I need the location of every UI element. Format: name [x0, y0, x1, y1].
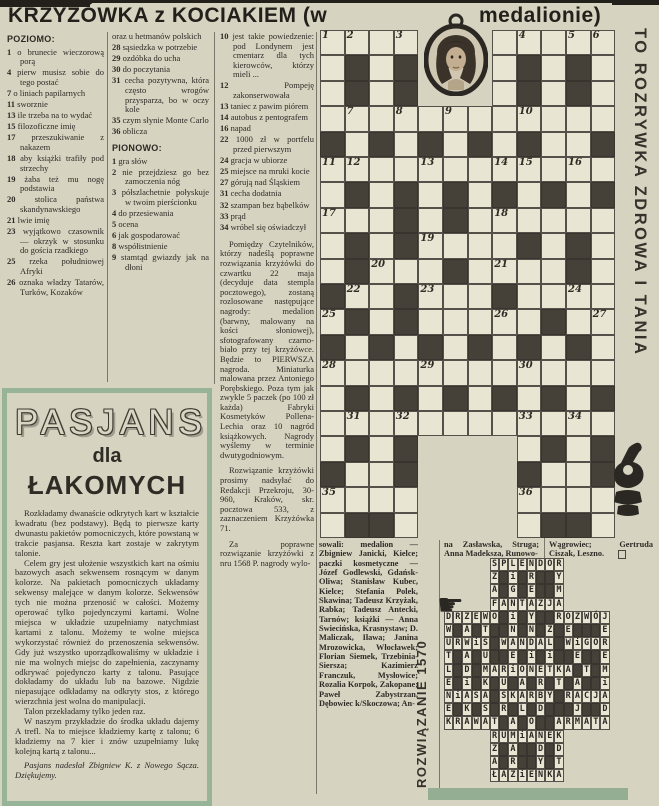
cell-letter: i: [527, 651, 536, 661]
grid-cell: A: [527, 730, 536, 743]
grid-cell: E: [472, 611, 481, 624]
grid-cell: T: [545, 664, 554, 677]
grid-cell: [541, 157, 566, 182]
grid-cell: [591, 360, 616, 385]
grid-cell: 8: [394, 106, 419, 131]
grid-cell: N: [536, 769, 545, 782]
cell-letter: A: [600, 717, 609, 727]
cell-letter: O: [518, 665, 527, 675]
cell-letter: N: [508, 599, 517, 609]
grid-cell: [541, 462, 566, 487]
cell-letter: M: [554, 585, 563, 595]
cell-letter: B: [536, 691, 545, 701]
clue-item: 22 1000 zł w portfelu przed pierwszym: [220, 135, 314, 154]
grid-cell: [443, 157, 468, 182]
grid-cell: N: [527, 558, 536, 571]
prize-announcement: Pomiędzy Czytelników, którzy nadeślą pop…: [220, 240, 314, 461]
grid-cell: [518, 743, 527, 756]
grid-cell: 20: [369, 259, 394, 284]
grid-cell: [345, 208, 370, 233]
cell-letter: i: [508, 665, 517, 675]
grid-cell: [345, 436, 370, 461]
grid-cell: [369, 182, 394, 207]
clue-item: 36 oblicza: [112, 127, 209, 137]
grid-cell: [369, 487, 394, 512]
grid-cell: [369, 386, 394, 411]
grid-cell: [394, 487, 419, 512]
clue-item: 33 prąd: [220, 212, 314, 222]
cell-letter: R: [453, 638, 462, 648]
grid-cell: J: [591, 690, 600, 703]
grid-cell: R: [508, 756, 517, 769]
grid-cell: [582, 677, 591, 690]
grid-cell: L: [508, 558, 517, 571]
cell-number: 22: [347, 284, 361, 295]
grid-cell: [492, 386, 517, 411]
grid-cell: [508, 677, 517, 690]
grid-cell: [566, 513, 591, 538]
cell-letter: C: [582, 691, 591, 701]
cell-letter: R: [564, 691, 573, 701]
cell-letter: A: [490, 585, 499, 595]
grid-cell: [566, 55, 591, 80]
grid-cell: [545, 677, 554, 690]
grid-cell: A: [554, 716, 563, 729]
grid-cell: S: [490, 558, 499, 571]
clue-item: 28 sąsiedzka w potrzebie: [112, 43, 209, 53]
grid-cell: [566, 182, 591, 207]
cell-number: 21: [494, 259, 508, 270]
cell-letter: N: [508, 625, 517, 635]
cell-number: 5: [568, 30, 575, 41]
cell-number: 2: [347, 30, 354, 41]
grid-cell: [517, 284, 542, 309]
grid-cell: E: [545, 730, 554, 743]
grid-cell: D: [462, 664, 471, 677]
grid-cell: [369, 30, 394, 55]
grid-cell: O: [518, 664, 527, 677]
grid-cell: [320, 182, 345, 207]
cell-letter: J: [591, 691, 600, 701]
grid-cell: S: [499, 690, 508, 703]
grid-cell: 23: [418, 284, 443, 309]
grid-cell: [468, 182, 493, 207]
column-rule: [316, 32, 317, 794]
cell-letter: M: [600, 665, 609, 675]
grid-cell: [320, 106, 345, 131]
cell-number: 13: [420, 157, 434, 168]
grid-cell: 18: [492, 208, 517, 233]
clue-item: 27 górują nad Śląskiem: [220, 178, 314, 188]
grid-cell: [573, 624, 582, 637]
grid-cell: A: [499, 769, 508, 782]
grid-cell: [566, 259, 591, 284]
cell-letter: A: [554, 599, 563, 609]
grid-cell: [591, 132, 616, 157]
grid-cell: [394, 436, 419, 461]
cell-number: 25: [322, 309, 336, 320]
grid-cell: Y: [536, 756, 545, 769]
grid-cell: [345, 259, 370, 284]
cell-letter: D: [536, 744, 545, 754]
cell-letter: W: [462, 638, 471, 648]
grid-cell: A: [573, 677, 582, 690]
grid-cell: P: [499, 558, 508, 571]
cell-letter: T: [444, 651, 453, 661]
cell-number: 35: [322, 487, 336, 498]
grid-cell: U: [481, 650, 490, 663]
grid-cell: [320, 335, 345, 360]
cell-letter: A: [508, 717, 517, 727]
pasjans-credit: Pasjans nadesłał Zbigniew K. z Nowego Są…: [15, 761, 199, 781]
grid-cell: [320, 284, 345, 309]
grid-cell: [541, 106, 566, 131]
cell-letter: J: [545, 599, 554, 609]
grid-cell: [566, 462, 591, 487]
grid-cell: B: [536, 690, 545, 703]
grid-cell: [517, 386, 542, 411]
grid-cell: [591, 664, 600, 677]
clue-item: 4 do przesiewania: [112, 209, 209, 219]
clues-column-2: oraz u hetmanów polskich28 sąsiedzka w p…: [112, 32, 209, 274]
cell-number: 31: [347, 411, 361, 422]
grid-cell: R: [527, 571, 536, 584]
grid-cell: O: [545, 558, 554, 571]
grid-cell: N: [444, 690, 453, 703]
grid-cell: [541, 233, 566, 258]
grid-cell: R: [564, 690, 573, 703]
grid-cell: [554, 650, 563, 663]
cell-letter: E: [600, 651, 609, 661]
grid-cell: [345, 462, 370, 487]
grid-cell: C: [582, 690, 591, 703]
cell-letter: A: [518, 691, 527, 701]
grid-cell: [492, 106, 517, 131]
grid-cell: [394, 259, 419, 284]
grid-cell: E: [508, 650, 517, 663]
grid-cell: [320, 386, 345, 411]
grid-cell: [468, 208, 493, 233]
grid-cell: [345, 81, 370, 106]
cell-letter: A: [582, 717, 591, 727]
grid-cell: i: [518, 769, 527, 782]
grid-cell: S: [481, 637, 490, 650]
clue-item: 34 wróbel się oświadczył: [220, 223, 314, 233]
cell-letter: P: [499, 559, 508, 569]
cell-number: 34: [568, 411, 582, 422]
grid-cell: [591, 284, 616, 309]
grid-cell: [541, 411, 566, 436]
cell-letter: M: [508, 731, 517, 741]
clue-item: 25 rzeka południowej Afryki: [7, 257, 104, 276]
grid-cell: [591, 208, 616, 233]
grid-cell: W: [582, 611, 591, 624]
cell-number: 10: [519, 106, 533, 117]
grid-cell: [591, 157, 616, 182]
cell-letter: E: [527, 585, 536, 595]
grid-cell: [418, 132, 443, 157]
cell-letter: S: [481, 638, 490, 648]
grid-cell: [472, 677, 481, 690]
grid-cell: A: [554, 598, 563, 611]
grid-cell: [443, 284, 468, 309]
grid-cell: [554, 703, 563, 716]
grid-cell: [527, 756, 536, 769]
grid-cell: [320, 55, 345, 80]
cell-number: 9: [445, 106, 452, 117]
grid-cell: [443, 182, 468, 207]
grid-cell: W: [564, 637, 573, 650]
grid-cell: T: [490, 716, 499, 729]
grid-cell: U: [499, 677, 508, 690]
grid-cell: U: [499, 730, 508, 743]
cell-letter: O: [591, 638, 600, 648]
cell-letter: G: [582, 638, 591, 648]
grid-cell: [345, 182, 370, 207]
cell-letter: A: [573, 691, 582, 701]
cell-letter: J: [573, 704, 582, 714]
grid-cell: A: [554, 769, 563, 782]
cell-number: 4: [519, 30, 526, 41]
grid-cell: [394, 157, 419, 182]
cell-letter: i: [518, 731, 527, 741]
grid-cell: 10: [517, 106, 542, 131]
cell-letter: S: [481, 704, 490, 714]
pasjans-article: PASJANS dla ŁAKOMYCH Rozkładamy dwanaści…: [2, 388, 212, 806]
clue-item: 2 nie przejdziesz go bez zamoczenia nóg: [112, 168, 209, 187]
grid-cell: [566, 386, 591, 411]
grid-cell: [468, 132, 493, 157]
cell-letter: Y: [545, 691, 554, 701]
grid-cell: [518, 611, 527, 624]
grid-cell: [490, 677, 499, 690]
cell-number: 14: [494, 157, 508, 168]
grid-cell: [468, 284, 493, 309]
cell-letter: U: [481, 651, 490, 661]
grid-cell: 36: [517, 487, 542, 512]
grid-cell: [443, 132, 468, 157]
grid-cell: Z: [508, 769, 517, 782]
grid-cell: [508, 703, 517, 716]
grid-cell: [472, 650, 481, 663]
cell-letter: T: [554, 757, 563, 767]
grid-cell: D: [554, 743, 563, 756]
grid-cell: [566, 360, 591, 385]
grid-cell: Z: [573, 611, 582, 624]
grid-cell: K: [462, 703, 471, 716]
grid-cell: [582, 703, 591, 716]
grid-cell: [566, 233, 591, 258]
cell-letter: L: [545, 638, 554, 648]
grid-cell: [545, 703, 554, 716]
grid-cell: K: [554, 664, 563, 677]
grid-cell: [517, 259, 542, 284]
cell-letter: N: [536, 770, 545, 780]
scan-edge-mark: [0, 0, 659, 3]
column-rule: [439, 540, 440, 792]
grid-cell: U: [444, 637, 453, 650]
grid-cell: [492, 30, 517, 55]
cell-letter: i: [472, 638, 481, 648]
cell-letter: Z: [536, 599, 545, 609]
clues-column-1: POZIOMO: 1 o brunecie wieczorową porą4 p…: [7, 32, 104, 299]
grid-cell: [499, 584, 508, 597]
grid-cell: [541, 81, 566, 106]
cell-letter: D: [536, 704, 545, 714]
grid-cell: [545, 756, 554, 769]
cell-number: 20: [371, 259, 385, 270]
grid-cell: [453, 650, 462, 663]
grid-cell: [468, 157, 493, 182]
clues-column-3: 10 jest takie powiedzenie: pod Londynem …: [220, 32, 314, 574]
grid-cell: [320, 81, 345, 106]
cell-letter: W: [481, 612, 490, 622]
grid-cell: [518, 716, 527, 729]
cell-letter: O: [527, 717, 536, 727]
cell-letter: R: [554, 612, 563, 622]
grid-cell: [541, 55, 566, 80]
grid-cell: D: [536, 558, 545, 571]
grid-cell: [320, 259, 345, 284]
cell-letter: N: [527, 625, 536, 635]
grid-cell: [369, 55, 394, 80]
grid-cell: [418, 309, 443, 334]
clue-item: 12 Pompeję zakonserwowała: [220, 81, 314, 100]
clue-item: 21 lwie imię: [7, 216, 104, 226]
grid-cell: R: [600, 637, 609, 650]
cell-letter: T: [591, 717, 600, 727]
cell-letter: i: [453, 691, 462, 701]
grid-cell: M: [554, 584, 563, 597]
grid-cell: [566, 335, 591, 360]
winners-column-3-text: Wągrowiec; Gertruda Ciszak, Leszno.: [549, 540, 653, 558]
grid-cell: [345, 309, 370, 334]
grid-cell: E: [600, 624, 609, 637]
grid-cell: [541, 386, 566, 411]
submission-instructions: Rozwiązanie krzyżówki prosimy nadsyłać d…: [220, 466, 314, 533]
grid-cell: [536, 716, 545, 729]
pasjans-paragraph: Celem gry jest ułożenie wszystkich kart …: [15, 559, 199, 708]
grid-cell: R: [499, 703, 508, 716]
cell-number: 26: [494, 309, 508, 320]
scan-edge-mark: [612, 0, 659, 5]
cell-letter: U: [499, 731, 508, 741]
previous-results-intro: Za poprawne rozwiązanie krzyżówki z nru …: [220, 540, 314, 569]
cell-letter: T: [490, 717, 499, 727]
grid-cell: i: [545, 650, 554, 663]
cell-letter: E: [545, 731, 554, 741]
grid-cell: [545, 611, 554, 624]
grid-cell: A: [490, 584, 499, 597]
grid-cell: [394, 386, 419, 411]
across-header: POZIOMO:: [7, 35, 104, 45]
cell-letter: D: [444, 612, 453, 622]
grid-cell: [541, 436, 566, 461]
cell-letter: O: [564, 612, 573, 622]
cell-number: 8: [396, 106, 403, 117]
grid-cell: [345, 513, 370, 538]
grid-cell: A: [527, 598, 536, 611]
grid-cell: [453, 703, 462, 716]
grid-cell: N: [518, 637, 527, 650]
clue-item: 7 o liniach papilarnych: [7, 89, 104, 99]
grid-cell: T: [481, 624, 490, 637]
cell-letter: i: [600, 678, 609, 688]
clue-item: 19 żaba też mu nogę podstawia: [7, 175, 104, 194]
grid-cell: Y: [545, 690, 554, 703]
grid-cell: [394, 55, 419, 80]
grid-cell: [492, 81, 517, 106]
grid-cell: 6: [591, 30, 616, 55]
grid-cell: [394, 360, 419, 385]
hand-illustration: [606, 440, 651, 530]
grid-cell: A: [518, 690, 527, 703]
grid-cell: [418, 106, 443, 131]
grid-cell: [394, 335, 419, 360]
cell-letter: A: [554, 717, 563, 727]
cell-letter: W: [444, 625, 453, 635]
cell-letter: S: [499, 691, 508, 701]
grid-cell: L: [444, 664, 453, 677]
grid-cell: [490, 624, 499, 637]
grid-cell: D: [444, 611, 453, 624]
cell-letter: L: [518, 704, 527, 714]
cell-letter: R: [499, 704, 508, 714]
grid-cell: [541, 208, 566, 233]
cell-letter: A: [481, 691, 490, 701]
grid-cell: [591, 55, 616, 80]
grid-cell: [499, 743, 508, 756]
grid-cell: [443, 233, 468, 258]
grid-cell: [492, 55, 517, 80]
cell-letter: A: [527, 731, 536, 741]
grid-cell: 30: [517, 360, 542, 385]
clue-item: 29 ozdóbka do ucha: [112, 54, 209, 64]
grid-cell: 3: [394, 30, 419, 55]
cell-number: 32: [396, 411, 410, 422]
grid-cell: D: [600, 703, 609, 716]
grid-cell: [541, 513, 566, 538]
cell-letter: T: [554, 678, 563, 688]
grid-cell: R: [554, 611, 563, 624]
grid-cell: i: [462, 677, 471, 690]
grid-cell: 31: [345, 411, 370, 436]
cell-letter: A: [508, 638, 517, 648]
cell-letter: W: [472, 717, 481, 727]
cell-letter: A: [600, 691, 609, 701]
grid-cell: [499, 756, 508, 769]
grid-cell: A: [499, 598, 508, 611]
grid-cell: O: [527, 716, 536, 729]
grid-cell: [518, 624, 527, 637]
grid-cell: [453, 677, 462, 690]
grid-cell: [517, 436, 542, 461]
cell-letter: A: [508, 744, 517, 754]
down-header: PIONOWO:: [112, 144, 209, 154]
grid-cell: [564, 703, 573, 716]
grid-cell: A: [490, 664, 499, 677]
grid-cell: [443, 411, 468, 436]
grid-cell: [517, 81, 542, 106]
grid-cell: Z: [490, 743, 499, 756]
cell-letter: A: [462, 625, 471, 635]
grid-cell: [582, 624, 591, 637]
pasjans-title: PASJANS: [15, 403, 199, 443]
cell-letter: R: [453, 717, 462, 727]
cell-letter: Z: [545, 625, 554, 635]
cell-letter: O: [545, 559, 554, 569]
grid-cell: R: [499, 664, 508, 677]
